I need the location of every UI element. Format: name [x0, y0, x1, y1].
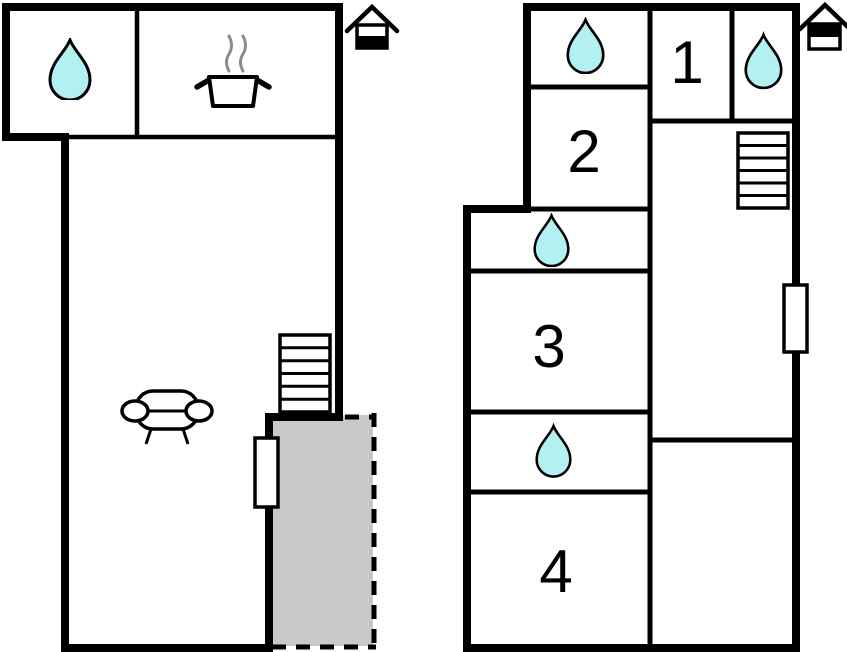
water-drop-icon	[50, 40, 90, 100]
room-label-2: 2	[567, 118, 600, 185]
water-drop-icon-middle	[535, 216, 569, 266]
terrace-fill	[273, 415, 373, 646]
stairs-icon-upper	[738, 133, 788, 208]
house-filled-upper-level	[809, 24, 840, 37]
upper-floor-outer-walls	[463, 3, 800, 652]
house-roof	[347, 7, 397, 31]
house-filled-lower-level	[357, 36, 387, 48]
stairs-icon	[280, 335, 330, 412]
floorplan-drawing: 1 2 3 4	[0, 0, 847, 652]
floorplan-canvas: 1 2 3 4	[0, 0, 847, 652]
house-ground-floor-indicator-icon	[347, 7, 397, 48]
pot-handle-left	[197, 80, 209, 87]
house-upper-floor-indicator-icon	[800, 5, 847, 49]
sofa-armrest-left	[122, 401, 148, 421]
upper-floor-plan: 1 2 3 4	[463, 3, 847, 652]
sofa-legs	[146, 429, 188, 444]
cooking-pot-icon	[197, 36, 269, 106]
water-drop-icon-right	[746, 35, 781, 88]
steam-line-right	[241, 36, 246, 71]
ground-floor-plan	[2, 3, 397, 652]
water-drop-icon-top	[568, 20, 603, 73]
sofa-icon	[122, 391, 212, 444]
ground-floor-inner-walls	[65, 7, 339, 139]
room-label-3: 3	[532, 313, 565, 380]
room-label-1: 1	[670, 29, 703, 96]
water-drop-icon-lower	[537, 426, 571, 476]
terrace-area	[272, 413, 376, 650]
upper-floor-inner-walls	[465, 7, 796, 648]
window-icon-upper	[784, 285, 807, 352]
room-label-4: 4	[539, 538, 572, 605]
window-icon	[255, 438, 278, 507]
pot-body	[209, 77, 257, 106]
sofa-armrest-right	[186, 401, 212, 421]
pot-handle-right	[257, 80, 269, 87]
steam-line-left	[227, 36, 232, 71]
